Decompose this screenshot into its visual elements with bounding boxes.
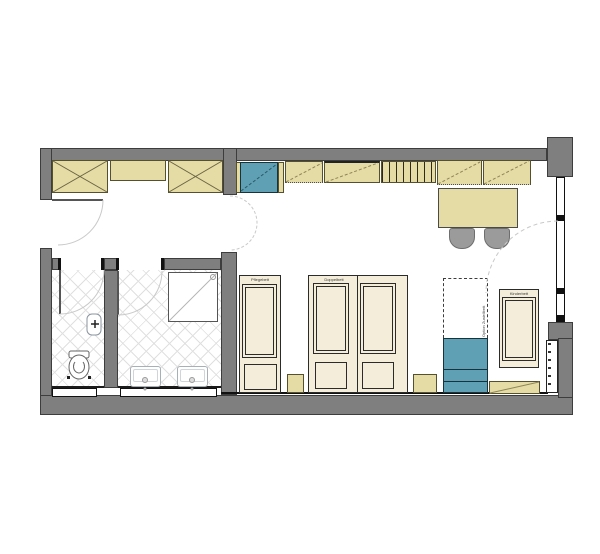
basin-inner (180, 369, 205, 382)
sofa-cushion-line (444, 369, 487, 370)
drawer-unit (381, 161, 436, 183)
sideboard-b (324, 161, 380, 183)
care-bed-label: Pflegebett (240, 276, 280, 283)
floor-plan: Pflegebett Doppelbett Option Zustellbett… (0, 0, 600, 554)
optional-extra-bed-label: Option Zustellbett (481, 281, 486, 337)
door-jamb (161, 258, 164, 270)
entry-bench (240, 162, 278, 193)
basin-inner (133, 369, 158, 382)
care-bed-mattress (242, 284, 277, 358)
double-bed-foot-left (315, 362, 347, 389)
wc-wall-niche (52, 388, 97, 397)
left-wall-upper (40, 148, 52, 200)
sofa-bed (443, 338, 488, 393)
low-cabinet (489, 381, 540, 394)
sofa-cushion-line (444, 381, 487, 382)
right-wall-lower (558, 338, 573, 398)
window-connector (556, 215, 565, 221)
hall-living-post (223, 148, 237, 195)
wc-bath-divider (104, 270, 118, 388)
child-bed-mattress (502, 297, 536, 361)
shelf-unit (110, 160, 166, 181)
balcony-window (556, 177, 565, 322)
window-connector (556, 288, 565, 294)
bottom-wall (40, 395, 573, 415)
bath-living-wall (221, 252, 237, 395)
door-jamb (101, 258, 104, 270)
double-bed-foot-right (362, 362, 394, 389)
chair (449, 228, 475, 249)
sideboard-d (483, 160, 531, 185)
optional-extra-bed: Option Zustellbett (443, 278, 488, 338)
double-bed-mattress-right (360, 283, 396, 354)
child-bed-label: Kinderbett (500, 290, 538, 297)
top-right-column (547, 137, 573, 177)
left-wall-lower (40, 248, 52, 415)
bathroom-wall-niche (120, 388, 217, 397)
hall-bath-wall-right (164, 258, 221, 270)
wc-floor (52, 270, 104, 388)
care-bed-foot (244, 364, 277, 390)
double-bed-mattress-left (313, 283, 349, 354)
bench-small (413, 374, 437, 393)
side-panel (278, 162, 284, 193)
washbasin-right (177, 366, 208, 387)
radiator (546, 340, 558, 393)
sideboard-c (437, 160, 482, 185)
window-connector (556, 315, 565, 321)
bench-small (287, 374, 304, 393)
shower (168, 272, 218, 322)
dining-table (438, 188, 518, 228)
chair (484, 228, 510, 249)
double-bed-label: Doppelbett (309, 276, 359, 283)
door-jamb (116, 258, 119, 270)
wardrobe-crossed-2 (168, 160, 223, 193)
wardrobe-crossed-1 (52, 160, 108, 193)
double-bed-divider (357, 275, 358, 393)
sideboard-a (285, 161, 323, 183)
door-jamb (58, 258, 61, 270)
washbasin-left (130, 366, 161, 387)
